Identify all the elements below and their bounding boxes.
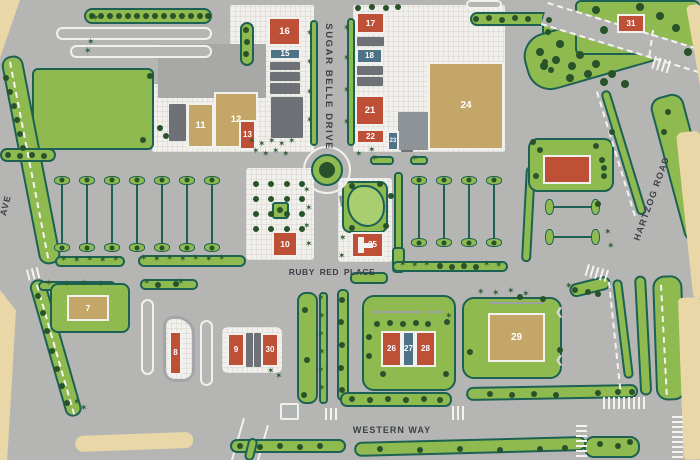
tree-icon bbox=[537, 446, 543, 452]
palm-icon: ✶ bbox=[477, 289, 487, 299]
tree-icon bbox=[417, 447, 423, 453]
tree-icon bbox=[600, 78, 608, 86]
tree-icon bbox=[134, 13, 140, 19]
tree-icon bbox=[152, 13, 158, 19]
tree-icon bbox=[525, 16, 531, 22]
parking-island bbox=[443, 184, 445, 239]
palm-icon: ✶ bbox=[60, 256, 70, 266]
tree-icon bbox=[160, 178, 165, 183]
tree-icon bbox=[135, 178, 140, 183]
palm-icon: ✶ bbox=[80, 405, 90, 415]
tree-icon bbox=[185, 178, 190, 183]
building-28[interactable]: 28 bbox=[415, 331, 436, 367]
tree-icon bbox=[107, 13, 113, 19]
street-label-ave: AVE bbox=[0, 177, 17, 234]
tree-icon bbox=[592, 6, 600, 14]
tree-icon bbox=[147, 73, 153, 79]
tree-icon bbox=[188, 13, 194, 19]
tree-icon bbox=[301, 392, 307, 398]
palm-icon: ✶ bbox=[92, 15, 102, 25]
building-label: 15 bbox=[281, 50, 290, 58]
building-9[interactable]: 9 bbox=[227, 333, 245, 367]
tree-icon bbox=[684, 48, 692, 56]
tree-icon bbox=[205, 13, 211, 19]
tree-icon bbox=[257, 444, 263, 450]
palm-icon: ✶ bbox=[306, 117, 316, 127]
tree-icon bbox=[35, 293, 41, 299]
palm-icon: ✶ bbox=[80, 280, 90, 290]
tree-icon bbox=[597, 441, 603, 447]
palm-icon: ✶ bbox=[318, 349, 328, 359]
tree-icon bbox=[530, 139, 536, 145]
tree-icon bbox=[157, 125, 163, 131]
building-31[interactable]: 31 bbox=[617, 14, 645, 33]
landscape-green bbox=[32, 68, 154, 150]
tree-icon bbox=[339, 387, 345, 393]
palm-icon: ✶ bbox=[177, 279, 187, 289]
tree-icon bbox=[556, 40, 564, 48]
parking-island bbox=[468, 184, 470, 239]
building-label: 7 bbox=[86, 304, 91, 313]
tree-icon bbox=[155, 282, 161, 288]
tree-icon bbox=[421, 396, 427, 402]
tree-icon bbox=[615, 389, 621, 395]
palm-icon: ✶ bbox=[371, 155, 381, 165]
tree-icon bbox=[383, 5, 389, 11]
parking-row bbox=[56, 27, 212, 40]
tree-icon bbox=[110, 246, 115, 251]
service-structure bbox=[254, 333, 261, 367]
building-label: 30 bbox=[266, 346, 275, 354]
tree-icon bbox=[284, 181, 290, 187]
building-30[interactable]: 30 bbox=[261, 333, 279, 367]
building-label: 17 bbox=[366, 19, 375, 28]
tree-icon bbox=[210, 178, 215, 183]
tree-icon bbox=[349, 183, 355, 189]
palm-icon: ✶ bbox=[140, 255, 150, 265]
tree-icon bbox=[672, 24, 680, 32]
parking-island bbox=[553, 236, 592, 238]
tree-icon bbox=[125, 13, 131, 19]
tree-icon bbox=[349, 396, 355, 402]
site-map: ❮❮78910111213151617182122232425262728293… bbox=[0, 0, 700, 460]
pavement-line bbox=[427, 311, 443, 313]
parking-island bbox=[161, 184, 163, 244]
building-26[interactable]: 26 bbox=[381, 331, 402, 367]
building-unnumbered bbox=[543, 155, 591, 184]
street-label-western-way: WESTERN WAY bbox=[352, 426, 432, 435]
tree-icon bbox=[545, 29, 551, 35]
tree-icon bbox=[533, 173, 539, 179]
crosswalk bbox=[325, 408, 338, 420]
building-11[interactable]: 11 bbox=[187, 103, 214, 148]
tree-icon bbox=[467, 178, 472, 183]
parking-island bbox=[418, 184, 420, 239]
building-8[interactable]: 8 bbox=[169, 331, 182, 375]
palm-icon: ✶ bbox=[303, 187, 313, 197]
tree-icon bbox=[253, 181, 259, 187]
parking-arrow-icon: ❮ bbox=[555, 355, 565, 365]
landscape-green bbox=[340, 392, 452, 407]
tree-icon bbox=[299, 196, 305, 202]
tree-icon bbox=[548, 67, 554, 73]
service-structure bbox=[270, 72, 300, 81]
tree-icon bbox=[161, 13, 167, 19]
tree-icon bbox=[185, 246, 190, 251]
palm-icon: ✶ bbox=[317, 367, 327, 377]
tree-icon bbox=[621, 80, 629, 88]
palm-icon: ✶ bbox=[63, 281, 73, 291]
tree-icon bbox=[64, 400, 70, 406]
palm-icon: ✶ bbox=[565, 283, 575, 293]
tree-icon bbox=[584, 70, 592, 78]
tree-icon bbox=[284, 226, 290, 232]
tree-icon bbox=[656, 12, 664, 20]
palm-icon: ✶ bbox=[306, 30, 316, 40]
palm-icon: ✶ bbox=[262, 151, 272, 161]
tree-icon bbox=[443, 371, 449, 377]
palm-icon: ✶ bbox=[343, 87, 353, 97]
tree-icon bbox=[197, 13, 203, 19]
undeveloped-parcel bbox=[0, 290, 16, 460]
palm-icon: ✶ bbox=[445, 313, 455, 323]
tree-icon bbox=[11, 103, 17, 109]
tree-icon bbox=[497, 447, 503, 453]
palm-icon: ✶ bbox=[338, 253, 348, 263]
service-structure bbox=[357, 66, 383, 75]
tree-icon bbox=[20, 145, 26, 151]
tree-icon bbox=[665, 109, 671, 115]
tree-icon bbox=[417, 178, 422, 183]
tree-icon bbox=[400, 321, 406, 327]
tree-icon bbox=[44, 328, 50, 334]
tree-icon bbox=[367, 397, 373, 403]
tree-icon bbox=[17, 153, 23, 159]
palm-icon: ✶ bbox=[318, 385, 328, 395]
pavement-line bbox=[372, 311, 424, 313]
palm-icon: ✶ bbox=[343, 25, 353, 35]
tree-icon bbox=[338, 365, 344, 371]
landscape-green bbox=[354, 436, 586, 457]
palm-icon: ✶ bbox=[483, 261, 493, 271]
tree-icon bbox=[585, 289, 591, 295]
tree-icon bbox=[163, 133, 169, 139]
tree-icon bbox=[601, 165, 607, 171]
palm-icon: ✶ bbox=[73, 257, 83, 267]
building-label: 25 bbox=[368, 241, 377, 249]
building-23[interactable]: 23 bbox=[387, 131, 399, 151]
tree-icon bbox=[54, 366, 60, 372]
building-label: 11 bbox=[195, 121, 205, 131]
palm-icon: ✶ bbox=[112, 256, 122, 266]
tree-icon bbox=[467, 349, 473, 355]
tree-icon bbox=[540, 296, 546, 302]
palm-icon: ✶ bbox=[205, 256, 215, 266]
tree-icon bbox=[536, 48, 544, 56]
tree-icon bbox=[5, 152, 11, 158]
tree-icon bbox=[593, 143, 599, 149]
palm-icon: ✶ bbox=[495, 262, 505, 272]
palm-icon: ✶ bbox=[218, 255, 228, 265]
tree-icon bbox=[568, 62, 576, 70]
tree-icon bbox=[595, 291, 601, 297]
palm-icon: ✶ bbox=[45, 280, 55, 290]
undeveloped-parcel bbox=[75, 432, 193, 452]
tree-icon bbox=[268, 226, 274, 232]
service-structure bbox=[271, 97, 303, 138]
tree-icon bbox=[317, 443, 323, 449]
tree-icon bbox=[253, 196, 259, 202]
palm-icon: ✶ bbox=[86, 256, 96, 266]
tree-icon bbox=[385, 396, 391, 402]
palm-icon: ✶ bbox=[318, 313, 328, 323]
landscape-green bbox=[612, 279, 634, 379]
tree-icon bbox=[319, 162, 335, 178]
parking-island bbox=[111, 184, 113, 244]
tree-icon bbox=[366, 353, 372, 359]
tree-icon bbox=[592, 60, 600, 68]
crosswalk bbox=[603, 397, 647, 409]
palm-icon: ✶ bbox=[355, 151, 365, 161]
building-label: 22 bbox=[366, 133, 375, 141]
tree-icon bbox=[284, 196, 290, 202]
building-15[interactable]: 15 bbox=[269, 48, 301, 60]
tree-icon bbox=[85, 246, 90, 251]
tree-icon bbox=[277, 207, 283, 213]
tree-icon bbox=[486, 15, 492, 21]
tree-icon bbox=[553, 392, 559, 398]
tree-icon bbox=[41, 153, 47, 159]
tree-icon bbox=[268, 196, 274, 202]
service-structure bbox=[398, 112, 428, 150]
palm-icon: ✶ bbox=[317, 295, 327, 305]
tree-icon bbox=[339, 342, 345, 348]
tree-icon bbox=[297, 444, 303, 450]
tree-icon bbox=[531, 391, 537, 397]
service-structure bbox=[357, 77, 383, 86]
parking-island bbox=[553, 206, 592, 208]
tree-icon bbox=[110, 178, 115, 183]
palm-icon: ✶ bbox=[411, 155, 421, 165]
palm-icon: ✶ bbox=[492, 290, 502, 300]
tree-icon bbox=[29, 152, 35, 158]
tree-icon bbox=[512, 15, 518, 21]
palm-icon: ✶ bbox=[317, 331, 327, 341]
tree-icon bbox=[374, 321, 380, 327]
tree-icon bbox=[437, 397, 443, 403]
parking-island bbox=[591, 229, 600, 245]
building-label: 9 bbox=[234, 346, 238, 354]
building-10[interactable]: 10 bbox=[272, 231, 298, 257]
tree-icon bbox=[492, 241, 497, 246]
tree-icon bbox=[595, 201, 601, 207]
tree-icon bbox=[7, 89, 13, 95]
building-27[interactable]: 27 bbox=[402, 331, 415, 367]
palm-icon: ✶ bbox=[305, 205, 315, 215]
palm-icon: ✶ bbox=[143, 279, 153, 289]
tree-icon bbox=[509, 392, 515, 398]
building-16[interactable]: 16 bbox=[268, 17, 301, 46]
parking-row bbox=[466, 0, 502, 9]
tree-icon bbox=[253, 226, 259, 232]
tree-icon bbox=[369, 4, 375, 10]
crosswalk bbox=[672, 414, 683, 458]
building-18[interactable]: 18 bbox=[356, 48, 383, 64]
tree-icon bbox=[492, 178, 497, 183]
pavement-line bbox=[490, 302, 544, 304]
building-21[interactable]: 21 bbox=[355, 95, 385, 126]
tree-icon bbox=[562, 445, 568, 451]
palm-icon: ✶ bbox=[604, 229, 614, 239]
parking-island bbox=[493, 184, 495, 239]
building-label: 31 bbox=[627, 20, 636, 28]
pond bbox=[347, 185, 385, 227]
tree-icon bbox=[380, 371, 386, 377]
tree-icon bbox=[49, 348, 55, 354]
street-label-ruby-red-place: RUBY RED PLACE bbox=[282, 268, 382, 277]
palm-icon: ✶ bbox=[507, 288, 517, 298]
monument-sign bbox=[280, 403, 299, 420]
tree-icon bbox=[425, 321, 431, 327]
tree-icon bbox=[661, 129, 667, 135]
palm-icon: ✶ bbox=[153, 256, 163, 266]
tree-icon bbox=[499, 17, 505, 23]
building-17[interactable]: 17 bbox=[356, 12, 385, 34]
building-label: 29 bbox=[511, 333, 522, 343]
tree-icon bbox=[304, 357, 310, 363]
tree-icon bbox=[552, 56, 560, 64]
palm-icon: ✶ bbox=[411, 262, 421, 272]
tree-icon bbox=[395, 4, 401, 10]
building-label: 23 bbox=[390, 138, 397, 144]
palm-icon: ✶ bbox=[522, 291, 532, 301]
palm-icon: ✶ bbox=[399, 261, 409, 271]
building-25[interactable]: 25 bbox=[351, 232, 384, 258]
tree-icon bbox=[601, 173, 607, 179]
tree-icon bbox=[442, 241, 447, 246]
tree-icon bbox=[179, 13, 185, 19]
tree-icon bbox=[59, 383, 65, 389]
tree-icon bbox=[268, 181, 274, 187]
tree-icon bbox=[40, 310, 46, 316]
tree-icon bbox=[387, 320, 393, 326]
tree-icon bbox=[540, 62, 548, 70]
landscape-green bbox=[634, 275, 652, 395]
tree-icon bbox=[85, 178, 90, 183]
service-structure bbox=[246, 333, 253, 367]
tree-icon bbox=[413, 320, 419, 326]
tree-icon bbox=[143, 13, 149, 19]
tree-icon bbox=[14, 117, 20, 123]
tree-icon bbox=[160, 246, 165, 251]
palm-icon: ✶ bbox=[99, 257, 109, 267]
tree-icon bbox=[243, 27, 249, 33]
tree-icon bbox=[243, 51, 249, 57]
tree-icon bbox=[467, 241, 472, 246]
palm-icon: ✶ bbox=[306, 59, 316, 69]
tree-icon bbox=[442, 178, 447, 183]
tree-icon bbox=[627, 439, 633, 445]
tree-icon bbox=[388, 193, 394, 199]
crosswalk bbox=[452, 406, 464, 420]
street-label-sugar-belle-drive: SUGAR BELLE DRIVE bbox=[323, 15, 333, 159]
tree-icon bbox=[170, 13, 176, 19]
building-label: 28 bbox=[421, 345, 430, 353]
tree-icon bbox=[17, 131, 23, 137]
tree-icon bbox=[339, 297, 345, 303]
palm-icon: ✶ bbox=[282, 151, 292, 161]
palm-icon: ✶ bbox=[607, 243, 617, 253]
tree-icon bbox=[355, 5, 361, 11]
service-structure bbox=[169, 104, 186, 141]
palm-icon: ✶ bbox=[97, 281, 107, 291]
tree-icon bbox=[609, 129, 615, 135]
palm-icon: ✶ bbox=[179, 256, 189, 266]
tree-icon bbox=[600, 26, 608, 34]
palm-icon: ✶ bbox=[303, 223, 313, 233]
tree-icon bbox=[3, 75, 9, 81]
palm-icon: ✶ bbox=[305, 241, 315, 251]
palm-icon: ✶ bbox=[423, 261, 433, 271]
tree-icon bbox=[566, 74, 574, 82]
tree-icon bbox=[237, 443, 243, 449]
tree-icon bbox=[268, 211, 274, 217]
building-label: 24 bbox=[460, 101, 471, 111]
tree-icon bbox=[595, 390, 601, 396]
building-29[interactable]: 29 bbox=[488, 313, 545, 362]
building-24[interactable]: 24 bbox=[428, 62, 504, 150]
tree-icon bbox=[366, 334, 372, 340]
tree-icon bbox=[608, 70, 616, 78]
tree-icon bbox=[473, 16, 479, 22]
tree-icon bbox=[377, 446, 383, 452]
parking-row bbox=[141, 299, 154, 375]
building-label: 8 bbox=[173, 349, 177, 357]
tree-icon bbox=[377, 181, 383, 187]
palm-icon: ✶ bbox=[84, 48, 94, 58]
building-7[interactable]: 7 bbox=[67, 295, 109, 321]
tree-icon bbox=[537, 147, 543, 153]
building-label: 10 bbox=[280, 240, 289, 249]
tree-icon bbox=[437, 263, 443, 269]
building-label: 27 bbox=[404, 345, 413, 353]
parking-island bbox=[86, 184, 88, 244]
palm-icon: ✶ bbox=[343, 55, 353, 65]
tree-icon bbox=[629, 389, 635, 395]
palm-icon: ✶ bbox=[339, 235, 349, 245]
tree-icon bbox=[253, 211, 259, 217]
landscape-green bbox=[394, 172, 403, 256]
tree-icon bbox=[457, 446, 463, 452]
service-structure bbox=[357, 37, 384, 46]
palm-icon: ✶ bbox=[343, 119, 353, 129]
parking-row bbox=[200, 320, 213, 386]
service-structure bbox=[270, 62, 300, 70]
tree-icon bbox=[140, 137, 146, 143]
palm-icon: ✶ bbox=[275, 373, 285, 383]
building-label: 21 bbox=[365, 106, 376, 116]
tree-icon bbox=[487, 391, 493, 397]
service-structure bbox=[270, 83, 300, 94]
parking-island bbox=[136, 184, 138, 244]
tree-icon bbox=[277, 443, 283, 449]
tree-icon bbox=[403, 397, 409, 403]
building-label: 18 bbox=[365, 52, 374, 60]
tree-icon bbox=[473, 264, 479, 270]
building-22[interactable]: 22 bbox=[356, 129, 385, 144]
tree-icon bbox=[302, 307, 308, 313]
tree-icon bbox=[135, 246, 140, 251]
